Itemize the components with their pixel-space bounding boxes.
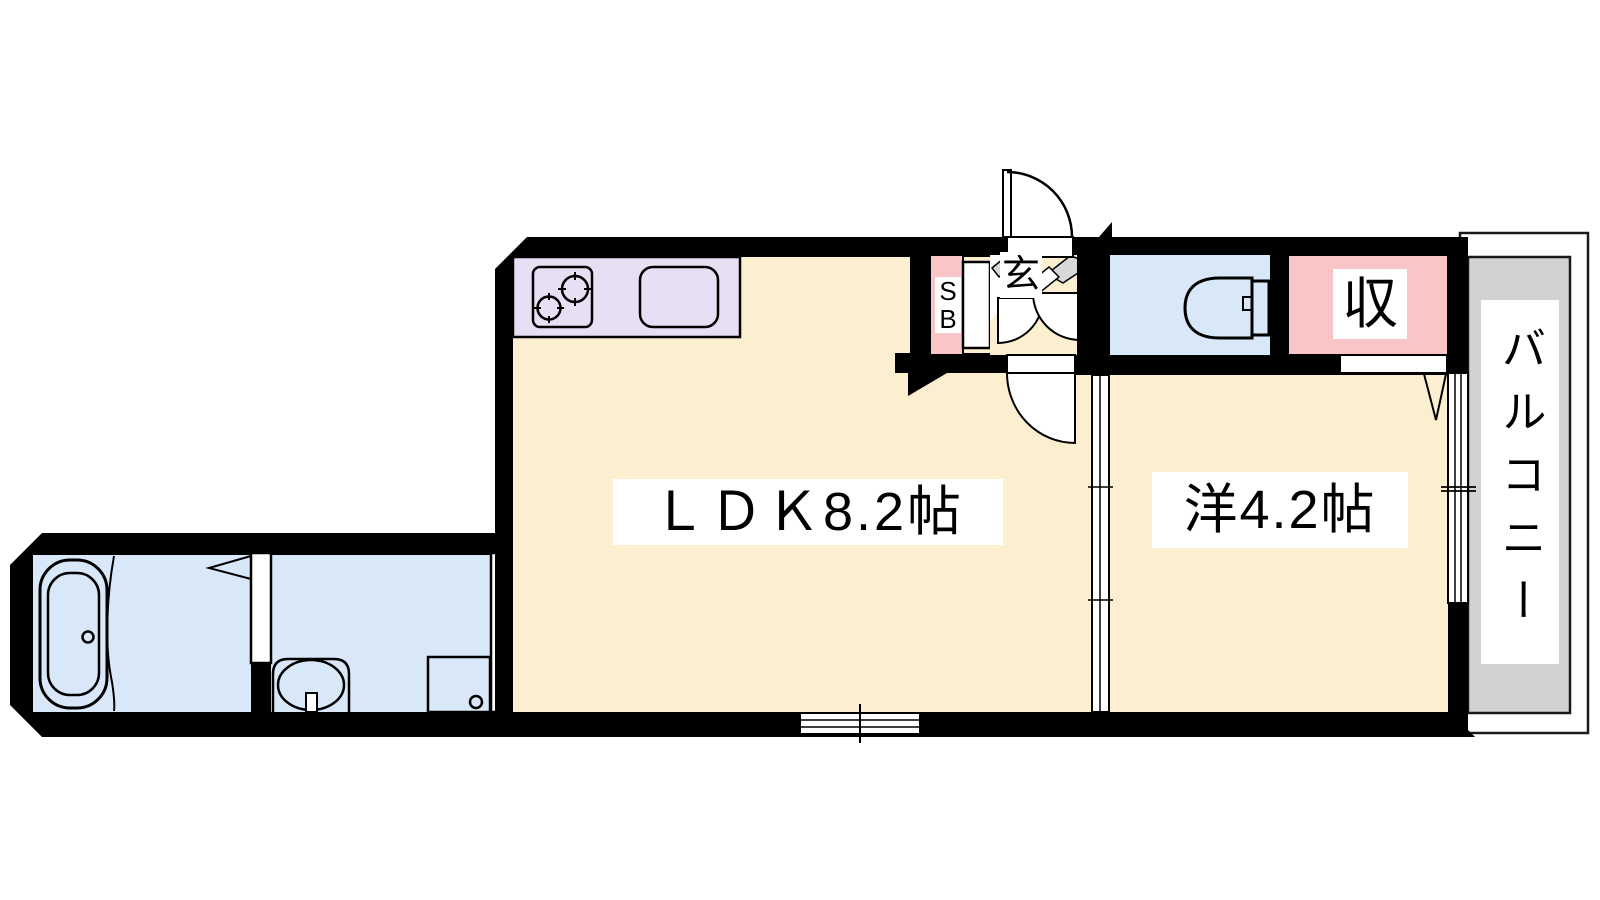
ldk-label: ＬＤＫ8.2帖	[613, 479, 1003, 545]
entrance-cabinet	[963, 262, 990, 348]
shoe-box-label-b: B	[939, 306, 956, 332]
wall	[1270, 255, 1288, 355]
door-swing-arc	[1007, 172, 1072, 237]
closet-door	[1340, 355, 1447, 373]
bathroom-floor	[33, 555, 251, 712]
closet-label: 収	[1333, 269, 1407, 339]
washroom-floor	[271, 555, 493, 712]
sliding-partition	[1088, 375, 1113, 712]
faucet-icon	[306, 693, 317, 712]
western-room-label: 洋4.2帖	[1152, 472, 1408, 548]
kitchen-counter	[513, 257, 740, 337]
balcony-label: バルコニー	[1481, 300, 1559, 664]
shoe-box-label-s: S	[939, 278, 956, 304]
main-structure	[493, 170, 1476, 743]
wall	[1075, 355, 1340, 375]
bath-wing	[8, 531, 513, 739]
entrance-door	[1003, 170, 1073, 257]
floor-plan: ＬＤＫ8.2帖 洋4.2帖 バルコニー 玄 収 S B	[0, 0, 1600, 900]
wall-stub	[251, 663, 271, 713]
toilet-room	[1110, 255, 1288, 355]
floor-plan-drawing	[0, 0, 1600, 900]
door-leaf	[1003, 170, 1011, 237]
shoe-box-label: S B	[935, 277, 961, 333]
entrance-label: 玄	[1000, 252, 1042, 298]
